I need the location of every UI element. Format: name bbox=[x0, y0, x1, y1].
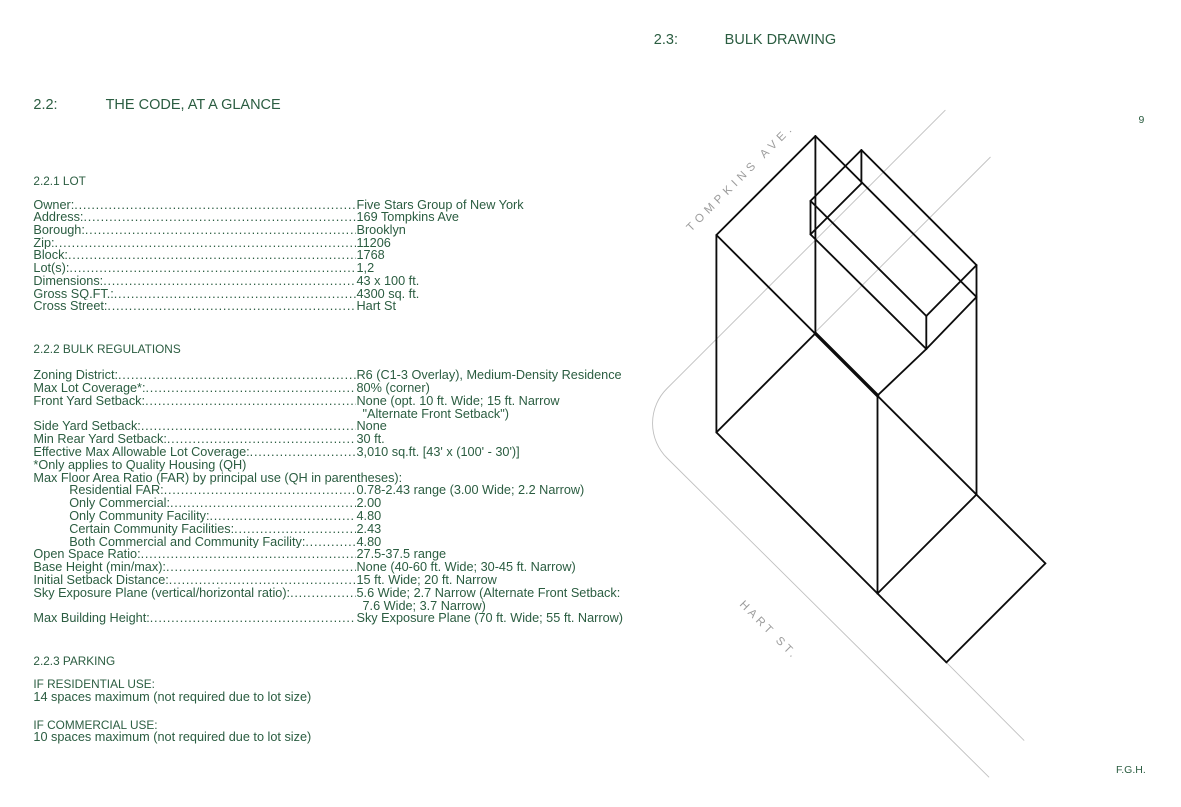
svg-text:TOMPKINS AVE.: TOMPKINS AVE. bbox=[685, 121, 798, 234]
svg-text:HART ST.: HART ST. bbox=[737, 599, 801, 663]
